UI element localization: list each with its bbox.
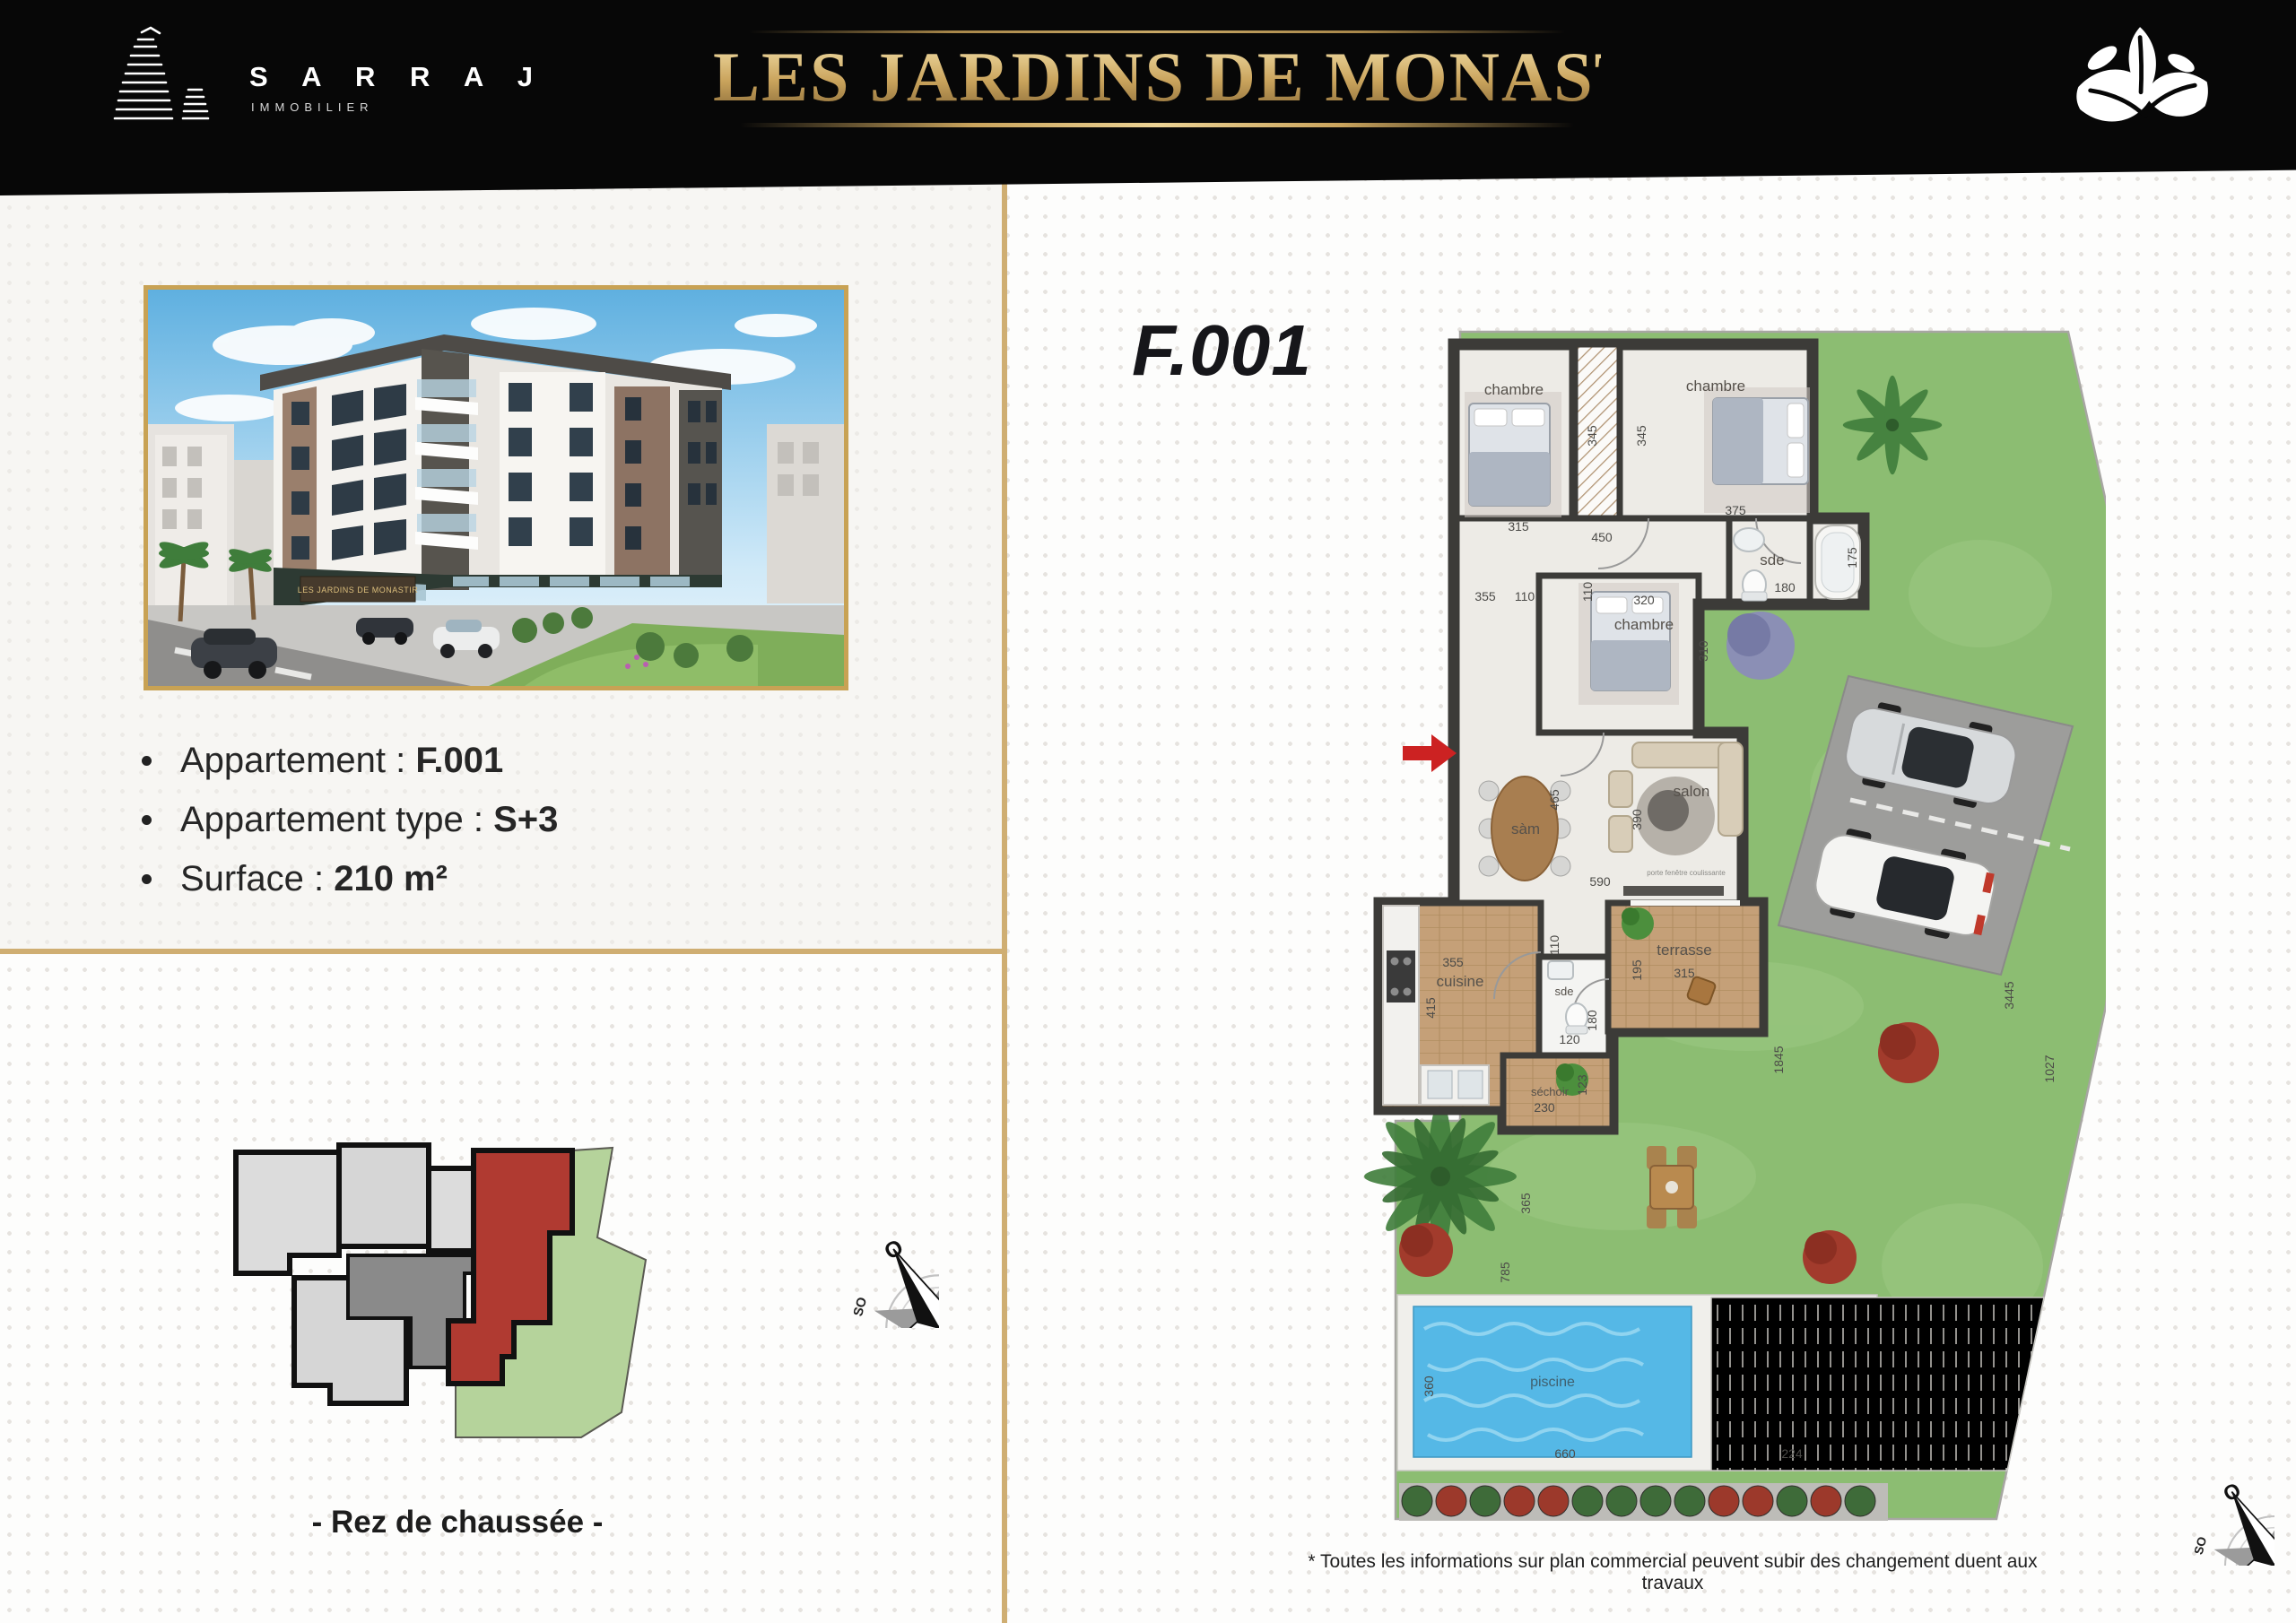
svg-text:320: 320 — [1633, 593, 1655, 607]
brand-text: S A R R A J IMMOBILIER — [249, 61, 546, 114]
project-title-block: LES JARDINS DE MONASTIR — [713, 30, 1601, 127]
svg-text:450: 450 — [1591, 530, 1613, 544]
pool-area: piscine — [1397, 1295, 2044, 1471]
svg-text:120: 120 — [1559, 1032, 1580, 1046]
svg-text:365: 365 — [1518, 1193, 1533, 1214]
svg-text:590: 590 — [1589, 874, 1611, 889]
apartment-info-list: Appartement : F.001 Appartement type : S… — [135, 741, 558, 918]
bed-2 — [1704, 387, 1810, 513]
svg-text:180: 180 — [1774, 580, 1796, 595]
building-render-illustration: LES JARDINS DE MONASTIR — [148, 290, 844, 686]
bush-red-1 — [1878, 1022, 1939, 1083]
title-rule-top — [749, 30, 1565, 33]
room-label-terrasse: terrasse — [1657, 942, 1711, 959]
svg-text:195: 195 — [1630, 959, 1644, 981]
compass-rose-left — [728, 1117, 939, 1328]
svg-text:1027: 1027 — [2042, 1055, 2057, 1082]
palm-tree-small — [1843, 376, 1943, 475]
pool-label: piscine — [1530, 1375, 1575, 1390]
apartment-label: Appartement : — [180, 741, 415, 781]
svg-text:123: 123 — [1575, 1074, 1589, 1096]
room-label-chambre-1: chambre — [1484, 381, 1544, 398]
room-label-sde-1: sde — [1760, 551, 1784, 568]
project-title: LES JARDINS DE MONASTIR — [713, 42, 1601, 112]
list-item: Surface : 210 m² — [135, 859, 558, 899]
bullet-icon — [142, 815, 152, 825]
svg-text:110: 110 — [1515, 589, 1535, 603]
building-sign-text: LES JARDINS DE MONASTIR — [298, 586, 419, 595]
bush-red-2 — [1399, 1223, 1453, 1277]
hedge-row — [1399, 1483, 1888, 1521]
svg-text:230: 230 — [1534, 1100, 1555, 1115]
svg-text:360: 360 — [1422, 1376, 1436, 1397]
svg-text:310: 310 — [1696, 640, 1710, 662]
svg-text:345: 345 — [1585, 425, 1599, 447]
brand-logo: S A R R A J IMMOBILIER — [83, 13, 546, 129]
list-item: Appartement type : S+3 — [135, 800, 558, 840]
room-label-sechoir: séchoir — [1531, 1085, 1570, 1098]
title-rule-bottom — [740, 123, 1574, 127]
room-label-chambre-2: chambre — [1686, 378, 1745, 395]
svg-text:355: 355 — [1474, 589, 1496, 603]
svg-text:465: 465 — [1547, 789, 1561, 811]
room-label-cuisine: cuisine — [1437, 973, 1484, 990]
svg-text:224: 224 — [1781, 1446, 1803, 1461]
svg-text:1845: 1845 — [1771, 1046, 1786, 1073]
svg-text:660: 660 — [1554, 1446, 1576, 1461]
bush-purple — [1726, 612, 1795, 680]
svg-text:415: 415 — [1423, 997, 1438, 1019]
svg-text:315: 315 — [1508, 519, 1529, 534]
surface-value: 210 m² — [334, 859, 448, 899]
room-label-salon: salon — [1674, 783, 1710, 800]
bush-red-3 — [1803, 1230, 1857, 1284]
brochure-page: S A R R A J IMMOBILIER LES JARDINS DE MO… — [0, 0, 2296, 1623]
surface-label: Surface : — [180, 859, 334, 899]
svg-text:175: 175 — [1845, 547, 1859, 568]
floor-plan: piscine — [1335, 325, 2106, 1526]
svg-text:180: 180 — [1585, 1010, 1599, 1031]
svg-text:3445: 3445 — [2002, 981, 2016, 1009]
svg-text:375: 375 — [1725, 503, 1746, 517]
floor-caption: - Rez de chaussée - — [206, 1505, 709, 1541]
svg-text:355: 355 — [1442, 955, 1464, 969]
room-label-sam: sàm — [1511, 820, 1540, 838]
bullet-icon — [142, 756, 152, 766]
room-label-sde-2: sde — [1555, 985, 1574, 998]
brand-name: S A R R A J — [249, 61, 546, 93]
svg-text:110: 110 — [1547, 935, 1561, 956]
svg-text:315: 315 — [1674, 966, 1695, 980]
vertical-gold-divider — [1002, 179, 1007, 1623]
building-tower-icon — [83, 13, 226, 129]
room-label-chambre-3: chambre — [1614, 616, 1674, 633]
header-bar: S A R R A J IMMOBILIER LES JARDINS DE MO… — [0, 0, 2296, 195]
compass-rose-right — [2077, 1368, 2274, 1566]
svg-text:390: 390 — [1630, 809, 1644, 830]
apartment-value: F.001 — [415, 741, 503, 781]
building-render-image: LES JARDINS DE MONASTIR — [143, 285, 848, 690]
horizontal-gold-divider — [0, 949, 1007, 954]
leaf-icon — [2065, 20, 2219, 156]
type-label: Appartement type : — [180, 800, 493, 840]
svg-text:345: 345 — [1634, 425, 1648, 447]
disclaimer-footnote: * Toutes les informations sur plan comme… — [1305, 1551, 2040, 1594]
unit-code-title: F.001 — [1132, 309, 1312, 392]
svg-text:785: 785 — [1498, 1262, 1512, 1283]
type-value: S+3 — [493, 800, 558, 840]
paved-terrace — [1711, 1298, 2044, 1471]
bed-1 — [1465, 392, 1561, 517]
list-item: Appartement : F.001 — [135, 741, 558, 781]
key-plan-diagram — [204, 1116, 723, 1500]
building-sign: LES JARDINS DE MONASTIR — [298, 577, 419, 602]
sliding-door-note: porte fenêtre coulissante — [1647, 869, 1726, 877]
bullet-icon — [142, 874, 152, 884]
svg-text:110: 110 — [1580, 582, 1595, 603]
brand-subtitle: IMMOBILIER — [251, 100, 546, 114]
